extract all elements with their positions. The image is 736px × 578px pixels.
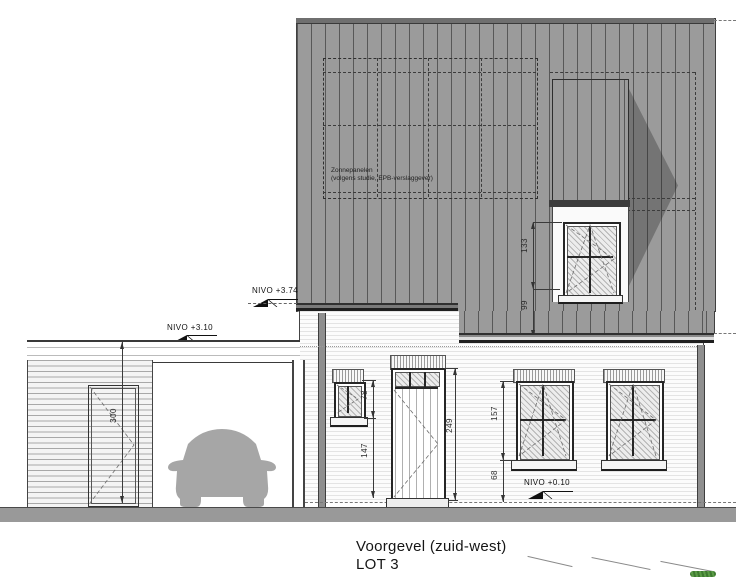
door-swing-lines bbox=[393, 389, 440, 498]
dormer-body bbox=[552, 79, 629, 202]
dormer-window bbox=[563, 222, 621, 301]
dim-small-window-sill: 147 bbox=[361, 443, 369, 458]
door-transom-mullion bbox=[424, 372, 426, 387]
dimension-line bbox=[455, 368, 456, 500]
eave-band-right bbox=[458, 333, 714, 343]
window-b-swing-lines bbox=[608, 383, 658, 458]
extension-line bbox=[533, 289, 560, 290]
shed-door-swing-lines bbox=[89, 386, 136, 504]
vegetation-patch bbox=[690, 571, 716, 577]
door-transom-mullion bbox=[409, 372, 411, 387]
solar-grid-line bbox=[481, 58, 482, 197]
extension-line bbox=[448, 500, 458, 501]
roof-cladding-lower-right bbox=[458, 311, 715, 333]
solar-grid-line bbox=[323, 72, 536, 73]
solar-grid-line bbox=[323, 192, 536, 193]
small-window bbox=[334, 382, 366, 421]
solar-grid-line-right bbox=[627, 210, 695, 211]
downpipe-left bbox=[318, 313, 326, 508]
ground-slab bbox=[0, 507, 736, 522]
dim-window-sill: 68 bbox=[491, 470, 499, 480]
dim-small-window: 78 bbox=[361, 390, 369, 400]
level-374-label: NIVO +3.74 bbox=[252, 287, 298, 295]
extension-line bbox=[364, 418, 376, 419]
window-a-sill bbox=[511, 460, 577, 471]
dimension-line bbox=[373, 380, 374, 498]
dormer-window-swing-lines bbox=[565, 224, 615, 295]
window-a bbox=[516, 381, 574, 464]
eave-band-left bbox=[296, 303, 458, 311]
solar-grid-line bbox=[323, 125, 536, 126]
window-a-swing-lines bbox=[518, 383, 568, 458]
solar-note-line1: Zonnepanelen bbox=[331, 167, 433, 175]
dim-dormer-window: 133 bbox=[521, 238, 529, 253]
front-door bbox=[391, 368, 446, 504]
solar-grid-line-right bbox=[550, 72, 695, 73]
dimension-arrow bbox=[531, 282, 535, 289]
terrain-sketch-line bbox=[592, 557, 651, 570]
level-marker-icon bbox=[253, 297, 299, 307]
level-line-310 bbox=[300, 346, 697, 347]
dimension-arrow bbox=[120, 342, 124, 349]
ridge-cap bbox=[296, 18, 714, 24]
dimension-arrow bbox=[501, 381, 505, 388]
dimension-arrow bbox=[371, 380, 375, 387]
dimension-arrow bbox=[453, 493, 457, 500]
shed-door bbox=[88, 385, 139, 507]
dimension-arrow bbox=[120, 496, 124, 503]
dormer-fascia bbox=[549, 200, 630, 207]
terrain-sketch-line bbox=[527, 556, 572, 567]
level-374-line bbox=[248, 303, 297, 304]
solar-note-line2: (volgens studie, EPB-verslaggever) bbox=[331, 175, 433, 183]
small-window-lintel bbox=[332, 369, 364, 383]
dimension-arrow bbox=[531, 222, 535, 229]
dormer-window-sill bbox=[558, 295, 623, 304]
door-transom-glass bbox=[395, 372, 440, 387]
dimension-arrow bbox=[453, 368, 457, 375]
solar-note: Zonnepanelen (volgens studie, EPB-versla… bbox=[331, 167, 433, 183]
ground-level-line bbox=[300, 502, 736, 503]
lot-label: LOT 3 bbox=[356, 556, 399, 573]
level-marker-icon bbox=[528, 489, 574, 499]
small-window-sill bbox=[330, 417, 368, 427]
level-010-label: NIVO +0.10 bbox=[524, 479, 570, 487]
dim-dormer-parapet: 99 bbox=[521, 300, 529, 310]
drawing-title: Voorgevel (zuid-west) bbox=[356, 538, 507, 555]
downpipe-right bbox=[697, 345, 705, 508]
dimension-arrow bbox=[371, 491, 375, 498]
dimension-line bbox=[533, 222, 534, 337]
boundary-line-top bbox=[714, 20, 736, 21]
extension-line bbox=[500, 460, 511, 461]
dim-door-height: 249 bbox=[446, 418, 454, 433]
extension-line bbox=[533, 222, 562, 223]
car-silhouette bbox=[164, 426, 280, 507]
window-b-sill bbox=[601, 460, 667, 471]
elevation-drawing: Zonnepanelen (volgens studie, EPB-versla… bbox=[0, 0, 736, 578]
dimension-line bbox=[503, 381, 504, 502]
dimension-arrow bbox=[371, 411, 375, 418]
dim-window-height: 157 bbox=[491, 406, 499, 421]
carport-column bbox=[292, 360, 305, 507]
dimension-arrow bbox=[501, 495, 505, 502]
window-b bbox=[606, 381, 664, 464]
boundary-line-eave bbox=[714, 333, 736, 334]
dimension-arrow bbox=[501, 453, 505, 460]
dim-carport-height: 300 bbox=[110, 408, 118, 423]
solar-grid-line-right bbox=[627, 198, 695, 199]
dimension-line bbox=[122, 342, 123, 503]
solar-grid-line-right bbox=[695, 72, 696, 310]
small-window-swing-lines bbox=[336, 384, 360, 415]
level-310-label: NIVO +3.10 bbox=[167, 324, 213, 332]
